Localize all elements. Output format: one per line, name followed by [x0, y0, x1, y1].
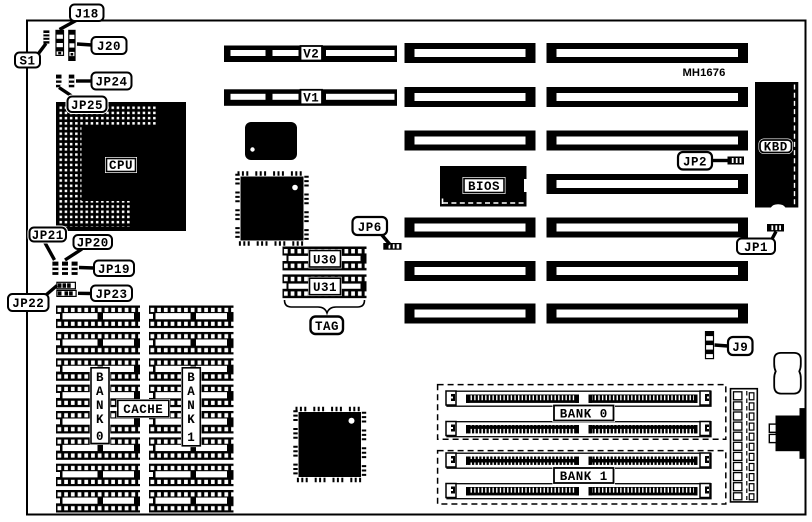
svg-text:J18: J18 [75, 7, 99, 21]
svg-text:N: N [96, 399, 104, 413]
svg-text:V1: V1 [303, 91, 319, 105]
svg-text:JP1: JP1 [744, 241, 768, 255]
svg-text:CPU: CPU [109, 159, 133, 173]
svg-text:JP20: JP20 [77, 236, 109, 250]
svg-text:S1: S1 [19, 54, 35, 68]
svg-text:BANK 0: BANK 0 [560, 407, 608, 421]
svg-text:U30: U30 [313, 253, 337, 267]
svg-text:K: K [187, 413, 195, 427]
svg-text:U31: U31 [313, 281, 337, 295]
svg-text:B: B [187, 371, 195, 385]
svg-text:JP25: JP25 [71, 99, 103, 113]
svg-text:V2: V2 [303, 48, 319, 62]
svg-text:B: B [96, 371, 104, 385]
svg-text:N: N [187, 399, 195, 413]
svg-text:JP19: JP19 [98, 263, 130, 277]
svg-text:JP21: JP21 [32, 229, 64, 243]
svg-text:TAG: TAG [315, 320, 339, 334]
svg-text:MH1676: MH1676 [683, 67, 726, 79]
svg-text:BIOS: BIOS [468, 180, 500, 194]
svg-text:CACHE: CACHE [123, 403, 163, 417]
svg-text:JP24: JP24 [95, 76, 127, 90]
svg-text:JP23: JP23 [95, 288, 127, 302]
svg-text:J20: J20 [97, 40, 121, 54]
svg-text:A: A [187, 385, 195, 399]
svg-text:KBD: KBD [764, 140, 788, 154]
svg-text:JP2: JP2 [683, 156, 707, 170]
svg-text:A: A [96, 385, 104, 399]
svg-text:JP22: JP22 [12, 297, 44, 311]
svg-text:BANK 1: BANK 1 [560, 470, 608, 484]
svg-text:0: 0 [96, 430, 104, 444]
svg-text:1: 1 [187, 431, 195, 445]
svg-text:J9: J9 [732, 341, 748, 355]
svg-text:K: K [96, 413, 104, 427]
svg-text:JP6: JP6 [358, 221, 382, 235]
